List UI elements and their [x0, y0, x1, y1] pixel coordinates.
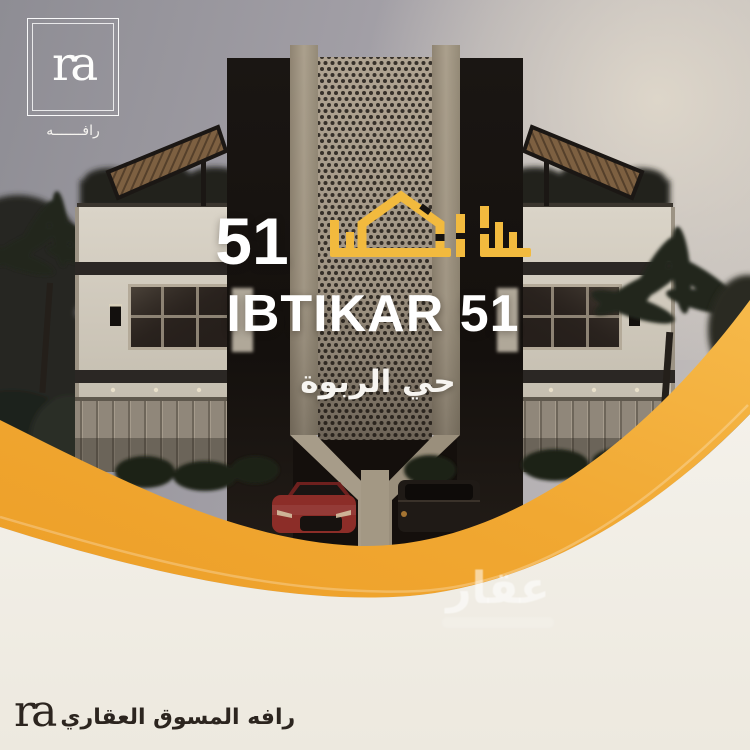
watermark-text: عقار — [418, 565, 578, 613]
watermark-subtext-blur — [442, 617, 554, 628]
brand-logo-mark: ra — [52, 41, 94, 94]
footer-tagline-arabic: رافه المسوق العقاري — [60, 695, 295, 730]
brand-logo-frame: ra — [27, 18, 119, 116]
real-estate-poster: ra رافـــــــه 51 IBTIKAR 51 حي الربوة — [0, 0, 750, 750]
footer-brand: ra رافه المسوق العقاري — [14, 690, 295, 734]
brand-name-arabic: رافـــــــه — [24, 123, 122, 139]
footer-logo-mark: ra — [14, 690, 53, 734]
aqar-watermark: عقار — [418, 565, 578, 628]
